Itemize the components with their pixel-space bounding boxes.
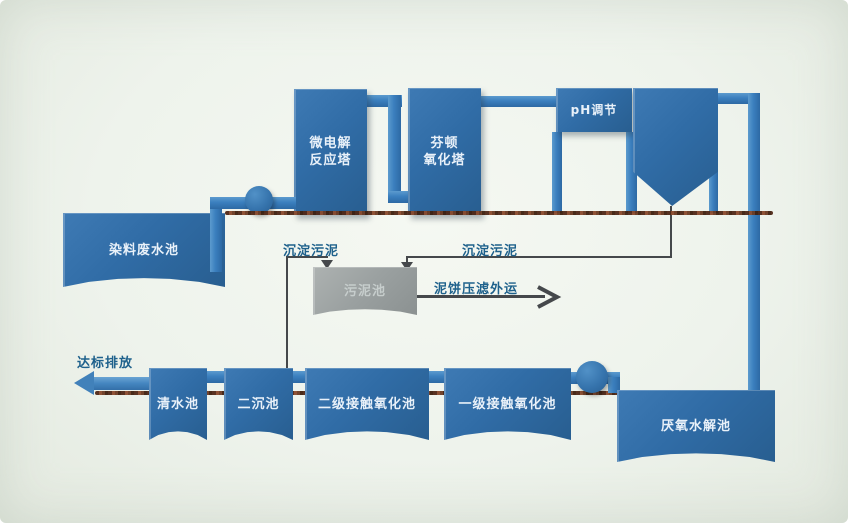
tank-label: 一级接触氧化池 (458, 396, 556, 413)
tank-label-line1: 微电解 (309, 135, 351, 152)
tank-label: 厌氧水解池 (661, 418, 731, 435)
tank-anaerobic-hydrolysis-pool: 厌氧水解池 (617, 390, 775, 462)
tank-clean-water-pool: 清水池 (149, 368, 207, 440)
tank-micro-electrolysis-tower: 微电解 反应塔 (294, 89, 367, 215)
tank-label: 清水池 (157, 396, 199, 413)
arrow-left-icon-discharge (74, 371, 94, 395)
tank-ph-adjust: pH调节 (556, 88, 632, 132)
tank-fenton-oxidation-tower: 芬顿 氧化塔 (408, 88, 481, 215)
tank-label: 二级接触氧化池 (318, 396, 416, 413)
process-flow-diagram: 染料废水池 微电解 反应塔 芬顿 氧化塔 pH调节 斜管沉淀池 污泥池 清水池 … (0, 0, 848, 523)
label-settled-sludge-right: 沉淀污泥 (462, 240, 518, 259)
tank-label-line2: 反应塔 (309, 152, 351, 169)
tank-label: 污泥池 (344, 283, 386, 300)
leg-ph-left (552, 132, 562, 213)
sludge-line-left-vertical (286, 257, 288, 370)
stub-cleanpool-secondary-settler (204, 371, 226, 383)
arrow-right-icon-mudcake (534, 283, 562, 311)
tank-dye-wastewater-pool: 染料废水池 (63, 213, 225, 287)
tank-secondary-settler: 二沉池 (224, 368, 293, 440)
tank-label: 染料废水池 (109, 242, 179, 259)
pipe-fenton-inlet-stub (388, 191, 410, 203)
tank-label-line1: 芬顿 (430, 135, 458, 152)
sludge-line-right-horizontal (407, 256, 672, 258)
tank-label: pH调节 (571, 102, 618, 119)
pipe-right-downcomer (748, 93, 760, 392)
pipe-microtower-to-fenton-down (388, 95, 401, 203)
ground-line-upper (225, 211, 773, 215)
tank-secondary-contact-oxidation: 二级接触氧化池 (305, 368, 429, 440)
tank-primary-contact-oxidation: 一级接触氧化池 (444, 368, 571, 440)
label-mudcake-out: 泥饼压滤外运 (434, 278, 518, 297)
tank-inclined-tube-settler: 斜管沉淀池 (633, 88, 718, 206)
tank-label: 斜管沉淀池 (640, 44, 710, 61)
pump-icon-inlet (245, 186, 273, 214)
label-settled-sludge-left: 沉淀污泥 (283, 240, 339, 259)
pump-icon-anaerobic (576, 361, 608, 393)
tank-label-line2: 氧化塔 (423, 152, 465, 169)
tank-sludge-pool: 污泥池 (313, 267, 417, 315)
pipe-dyepool-riser (210, 199, 222, 272)
tank-label: 二沉池 (237, 396, 279, 413)
stub-secondary-primary-ox (427, 371, 446, 383)
label-discharge: 达标排放 (77, 352, 133, 371)
